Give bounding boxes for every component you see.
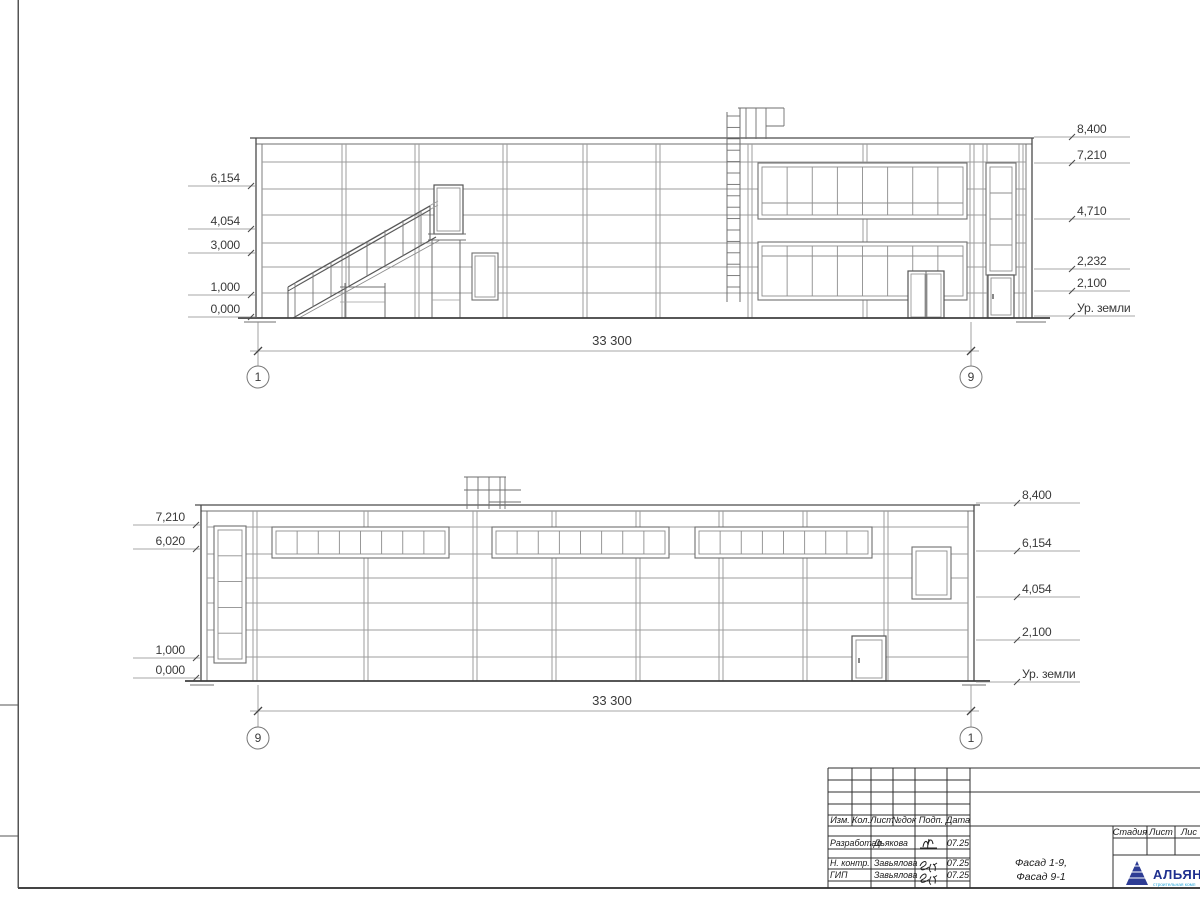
tb-col-sheet: Лист: [1148, 827, 1173, 837]
single-window: [912, 547, 951, 599]
tb-col-sheets: Лис: [1180, 827, 1197, 837]
stair-door: [434, 185, 463, 234]
tb-col-izm: Изм.: [830, 815, 850, 825]
elevation-mark-label: 1,000: [156, 643, 186, 657]
elevation-mark-label: 7,210: [1077, 148, 1107, 162]
ground-level-label: Ур. земли: [1077, 301, 1130, 315]
dimension-label: 33 300: [592, 693, 632, 708]
sheet-frame: [0, 0, 1200, 888]
tb-col-podp: Подп.: [919, 815, 943, 825]
elevation-mark-label: 8,400: [1022, 488, 1052, 502]
facade-top-marks-right: 8,400 7,210 4,710 2,232 2,100 Ур. земли: [1034, 122, 1135, 319]
elevation-mark-label: 6,154: [211, 171, 241, 185]
facade-bottom-ground: [185, 681, 990, 685]
tb-col-list: Лист: [869, 815, 894, 825]
tb-name: Завьялова: [874, 858, 917, 868]
tb-role: ГИП: [830, 870, 848, 880]
tb-name: Завьялова: [874, 870, 917, 880]
tb-col-ndok: №док: [892, 815, 917, 825]
tb-date: 07.25: [947, 870, 969, 880]
external-staircase: [288, 201, 440, 318]
elevation-mark-label: 0,000: [211, 302, 241, 316]
tb-col-data: Дата: [945, 815, 970, 825]
elevation-mark-label: 7,210: [156, 510, 186, 524]
doc-title-line2: Фасад 9-1: [1016, 871, 1065, 883]
tb-col-kol: Кол.: [852, 815, 870, 825]
facade-drawing-svg: 33 300 1 9 6,154 4,054 3,000 1,000 0,000…: [0, 0, 1200, 900]
tb-date: 07.25: [947, 858, 969, 868]
roof-railing: [464, 477, 521, 509]
elevation-mark-label: 4,054: [211, 214, 241, 228]
elevation-mark-label: 4,054: [1022, 582, 1052, 596]
axis-marker: 9: [968, 370, 975, 384]
entrance-door: [852, 636, 886, 681]
elevation-mark-label: 2,100: [1022, 625, 1052, 639]
axis-marker: 1: [255, 370, 262, 384]
facade-bottom-marks-right: 8,400 6,154 4,054 2,100 Ур. земли: [976, 488, 1080, 685]
dimension-label: 33 300: [592, 333, 632, 348]
axis-marker: 9: [255, 731, 262, 745]
elevation-mark-label: 1,000: [211, 280, 241, 294]
ladder-rungs: [727, 116, 740, 287]
logo-subtext: строительная комп: [1153, 883, 1196, 888]
ground-level-label: Ур. земли: [1022, 667, 1075, 681]
double-door: [908, 271, 944, 318]
facade-top-window-bands: [758, 163, 1016, 300]
elevation-mark-label: 2,100: [1077, 276, 1107, 290]
elevation-mark-label: 6,154: [1022, 536, 1052, 550]
elevation-mark-label: 6,020: [156, 534, 186, 548]
facade-top-ground: [238, 318, 1050, 322]
doc-title-line1: Фасад 1-9,: [1015, 857, 1067, 869]
small-window: [472, 253, 498, 300]
facade-bottom-dimension: 33 300 9 1: [247, 685, 982, 749]
tb-name: Дьякова: [873, 838, 908, 848]
alliance-logo: АЛЬЯН строительная комп: [1126, 861, 1200, 888]
signature-icon: [920, 839, 937, 885]
drawing-sheet: 33 300 1 9 6,154 4,054 3,000 1,000 0,000…: [0, 0, 1200, 900]
facade-bottom-window-bands: [214, 526, 872, 663]
facade-bottom-details: [464, 477, 951, 681]
elevation-mark-label: 4,710: [1077, 204, 1107, 218]
facade-bottom-marks-left: 7,210 6,020 1,000 0,000: [133, 510, 202, 681]
elevation-mark-label: 0,000: [156, 663, 186, 677]
elevation-mark-label: 8,400: [1077, 122, 1107, 136]
facade-top-marks-left: 6,154 4,054 3,000 1,000 0,000: [188, 171, 257, 320]
logo-text: АЛЬЯН: [1153, 867, 1200, 882]
elevation-mark-label: 2,232: [1077, 254, 1107, 268]
tb-date: 07.25: [947, 838, 969, 848]
tb-col-stage: Стадия: [1113, 827, 1147, 837]
elevation-mark-label: 3,000: [211, 238, 241, 252]
facade-top-dimension: 33 300 1 9: [247, 322, 982, 388]
side-door: [988, 275, 1014, 318]
axis-marker: 1: [968, 731, 975, 745]
tb-role: Н. контр.: [830, 858, 870, 868]
logo-pyramid-icon: [1126, 861, 1148, 885]
